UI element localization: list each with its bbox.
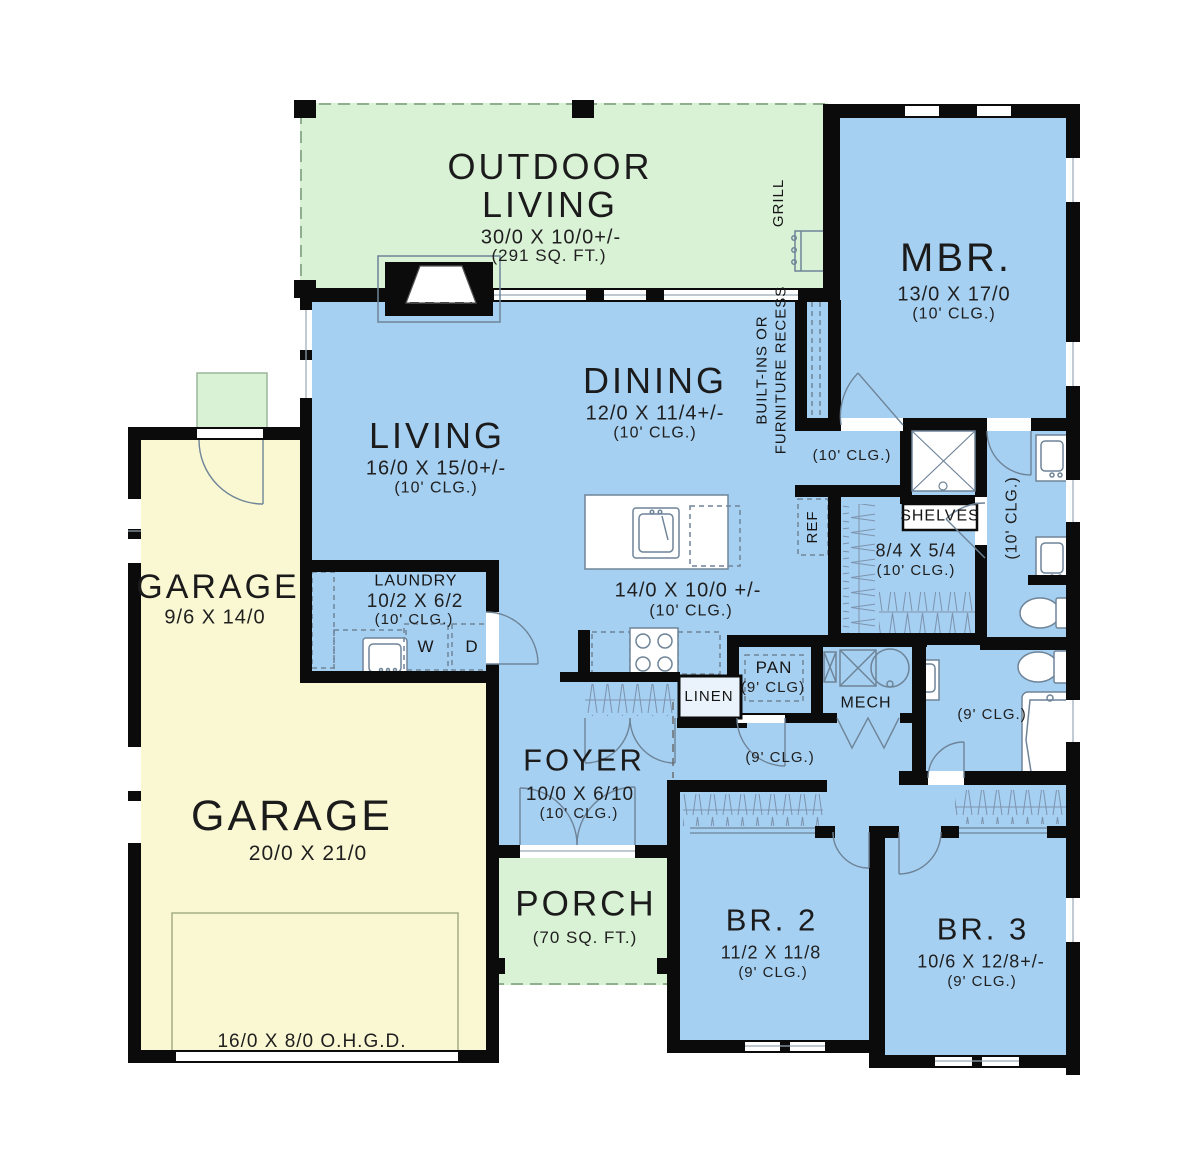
pantry-label: PAN: [756, 659, 793, 677]
br3-dims: 10/6 X 12/8+/-: [917, 952, 1045, 971]
br3-clg: (9' CLG.): [947, 974, 1016, 990]
kitchen-clg: (10' CLG.): [649, 604, 732, 621]
washer-label: W: [417, 638, 434, 656]
hall-bed-clg: (9' CLG.): [745, 750, 814, 766]
garage-small-dims: 9/6 X 14/0: [164, 607, 265, 628]
builtins-label: BUILT-INS ORFURNITURE RECESS: [753, 286, 791, 455]
room-label-garage-small: GARAGE: [136, 569, 299, 605]
pantry-clg: (9' CLG): [741, 680, 805, 696]
foyer-dims: 10/0 X 6/10: [526, 785, 634, 805]
hall-upper-clg: (10' CLG.): [813, 448, 892, 464]
room-label-living: LIVING: [369, 417, 505, 455]
dining-clg: (10' CLG.): [613, 426, 696, 443]
master-closet-clg: (10' CLG.): [877, 563, 956, 579]
laundry-dims: 10/2 X 6/2: [367, 592, 464, 612]
foyer-clg: (10' CLG.): [540, 806, 619, 822]
living-clg: (10' CLG.): [394, 481, 477, 498]
floor-plan: OUTDOOR LIVING 30/0 X 10/0+/- (291 SQ. F…: [0, 0, 1200, 1164]
builtins-line1: BUILT-INS OR: [753, 315, 770, 424]
garage-door-label: 16/0 X 8/0 O.H.G.D.: [217, 1032, 406, 1052]
grill-label: GRILL: [771, 179, 787, 227]
room-label-porch: PORCH: [515, 885, 656, 922]
room-label-foyer: FOYER: [523, 745, 645, 778]
kitchen-dims: 14/0 X 10/0 +/-: [615, 580, 762, 601]
master-bath-clg: (10' CLG.): [1005, 476, 1022, 559]
porch-area: (70 SQ. FT.): [533, 929, 638, 947]
dryer-label: D: [465, 638, 478, 656]
mbr-clg: (10' CLG.): [912, 307, 995, 324]
master-closet-dims: 8/4 X 5/4: [875, 541, 956, 560]
room-label-outdoor-living: OUTDOOR LIVING: [415, 148, 685, 224]
br2-clg: (9' CLG.): [738, 965, 807, 981]
garage-main-dims: 20/0 X 21/0: [249, 843, 367, 865]
room-label-garage-main: GARAGE: [191, 794, 393, 840]
room-label-br2: BR. 2: [726, 905, 819, 938]
dining-dims: 12/0 X 11/4+/-: [586, 403, 725, 424]
ref-label: REF: [805, 511, 821, 544]
laundry-clg: (10' CLG.): [375, 612, 454, 628]
room-label-br3: BR. 3: [937, 914, 1030, 947]
bath2-clg: (9' CLG.): [957, 707, 1026, 723]
mech-label: MECH: [840, 696, 891, 713]
linen-label: LINEN: [684, 689, 733, 705]
mbr-dims: 13/0 X 17/0: [897, 284, 1010, 305]
room-label-mbr: MBR.: [900, 237, 1012, 279]
br2-dims: 11/2 X 11/8: [721, 943, 821, 962]
outdoor-living-area: (291 SQ. FT.): [491, 247, 606, 265]
room-label-dining: DINING: [583, 362, 727, 400]
shelves-label: SHELVES: [900, 509, 980, 526]
living-dims: 16/0 X 15/0+/-: [366, 458, 506, 479]
builtins-line2: FURNITURE RECESS: [772, 286, 789, 455]
room-label-laundry: LAUNDRY: [374, 574, 457, 591]
